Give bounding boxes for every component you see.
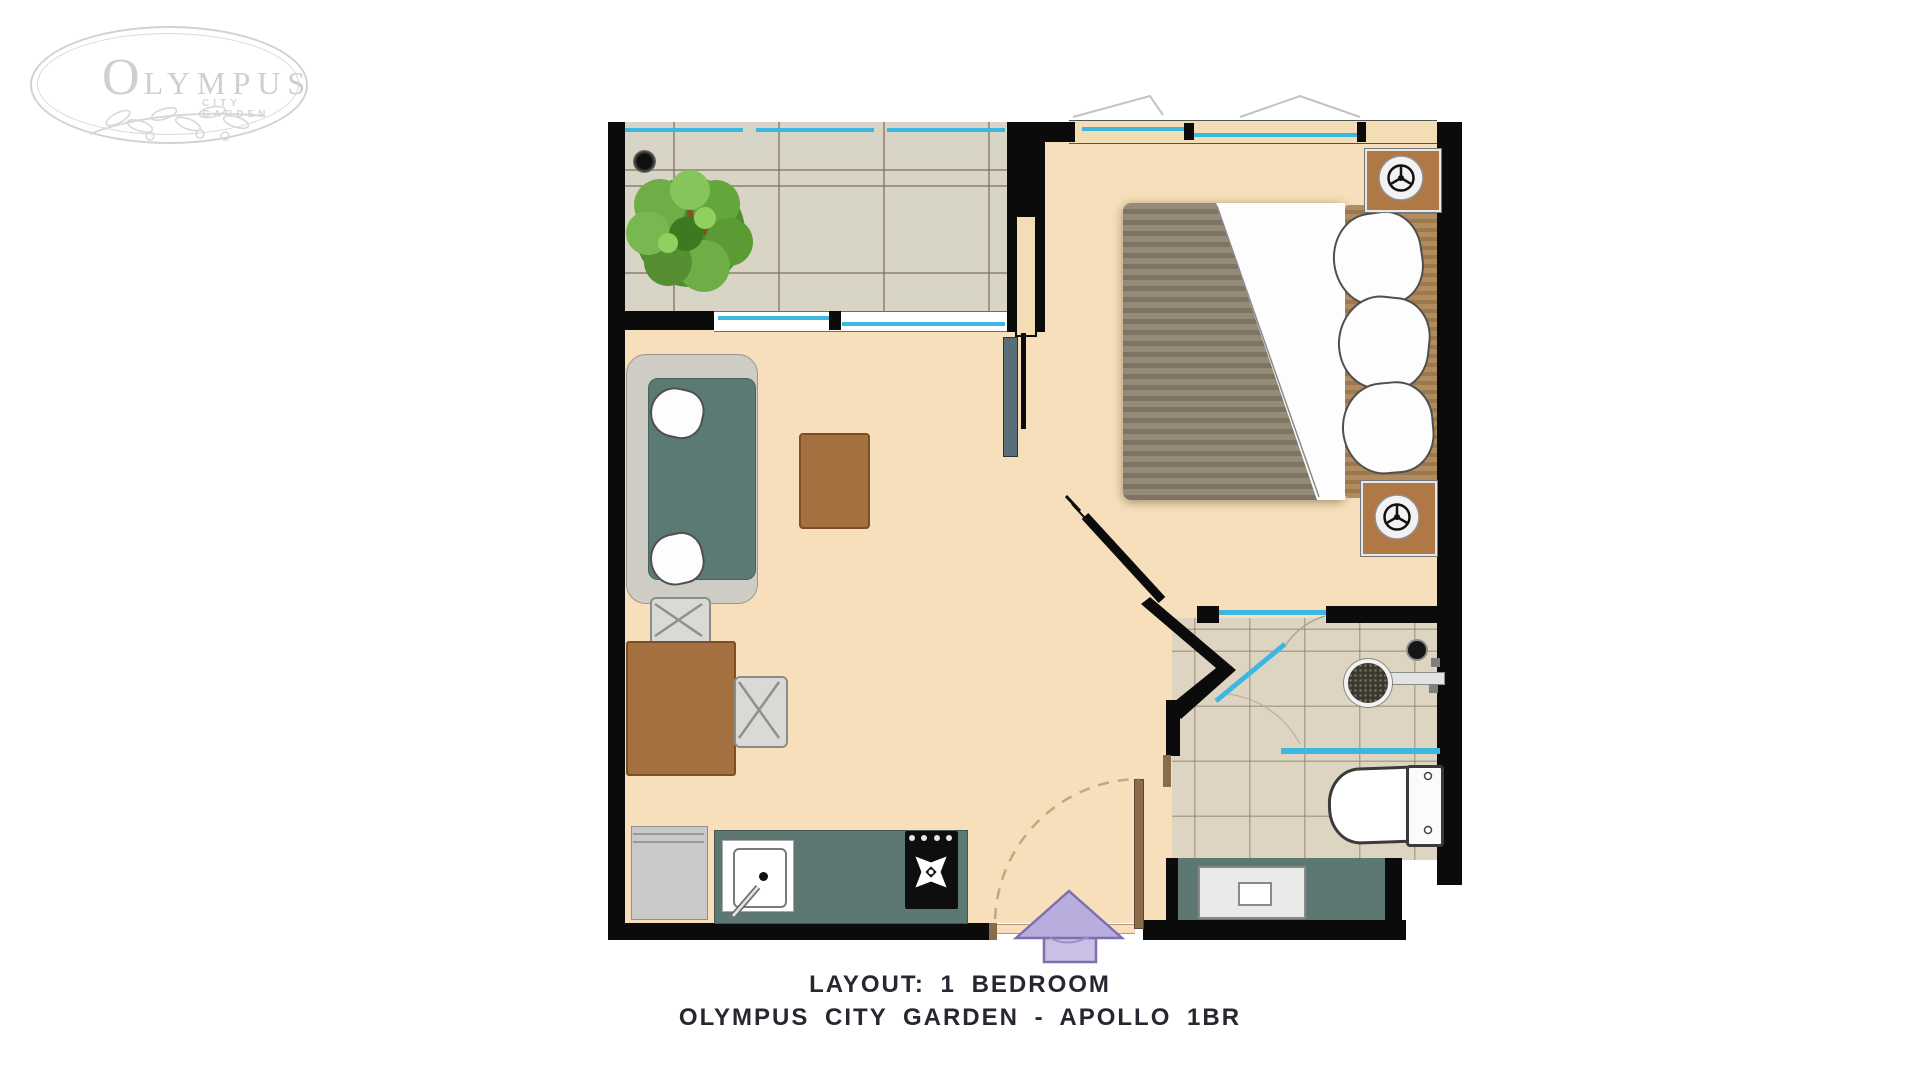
floorplan-page: OLYMPUS CITY GARDEN — [0, 0, 1920, 1080]
caption-line-1: LAYOUT: 1 BEDROOM — [0, 971, 1920, 999]
wall-bath-top-left — [1197, 606, 1219, 623]
shower-drain-icon — [1344, 659, 1392, 707]
stove — [905, 831, 958, 909]
bathroom-door-opening-glass — [1219, 610, 1326, 615]
bathroom-door-jamb — [1163, 755, 1171, 787]
caption-line-2: OLYMPUS CITY GARDEN - APOLLO 1BR — [0, 1004, 1920, 1032]
balcony-door-glass-left — [718, 316, 830, 320]
ac-unit-bottom — [1361, 481, 1437, 556]
logo: OLYMPUS CITY GARDEN — [30, 26, 308, 144]
ac-unit-top — [1365, 149, 1441, 212]
bathroom-floor-drain-icon — [1408, 641, 1426, 659]
kitchen-sink-drain — [759, 872, 768, 881]
shower-valve-handle-1 — [1431, 658, 1440, 667]
fridge-line-1 — [633, 833, 704, 835]
wall-bath-right-notch — [1385, 858, 1402, 940]
shower-valve-handle-2 — [1429, 684, 1438, 693]
wall-hall-bath — [1166, 700, 1180, 756]
toilet-tank — [1406, 765, 1444, 847]
entry-threshold — [993, 924, 1135, 934]
vanity-sink-basin — [1238, 882, 1272, 906]
dining-chair-top — [650, 597, 711, 647]
balcony-door-glass-right — [842, 322, 1005, 326]
balcony-floor — [625, 122, 1007, 312]
balcony-floor-drain-icon — [633, 150, 656, 173]
bedroom-sliding-door-track — [1021, 333, 1026, 429]
bedroom-sliding-door-pocket — [1015, 215, 1037, 337]
balcony-railing-glass — [625, 128, 1007, 132]
logo-olive-branch — [80, 76, 280, 146]
bedroom-window-mullion — [1184, 123, 1194, 140]
fridge-line-2 — [633, 841, 704, 843]
toilet-bowl — [1327, 765, 1418, 845]
balcony-door-mullion — [829, 311, 841, 330]
bedroom-window-jamb-left — [1066, 122, 1075, 142]
dining-chair-right — [734, 676, 788, 748]
dining-table — [626, 641, 736, 776]
bedroom-window-band — [1069, 120, 1437, 144]
window-opening-marks — [1073, 96, 1360, 117]
wall-left — [608, 122, 625, 938]
wall-bath-top-right — [1326, 606, 1443, 623]
wall-bottom-center — [1143, 920, 1406, 940]
wall-balcony-bottom — [625, 311, 715, 330]
wall-bottom-left — [608, 923, 993, 940]
entry-door-jamb — [989, 923, 997, 940]
bedroom-window-glass-right — [1194, 133, 1365, 137]
bedroom-window-jamb-right — [1357, 122, 1366, 142]
entry-door-leaf — [1134, 779, 1144, 929]
shower-glass-partition — [1281, 748, 1440, 754]
tv-panel — [1003, 337, 1018, 457]
coffee-table — [799, 433, 870, 529]
bedroom-window-glass-left — [1082, 127, 1186, 131]
